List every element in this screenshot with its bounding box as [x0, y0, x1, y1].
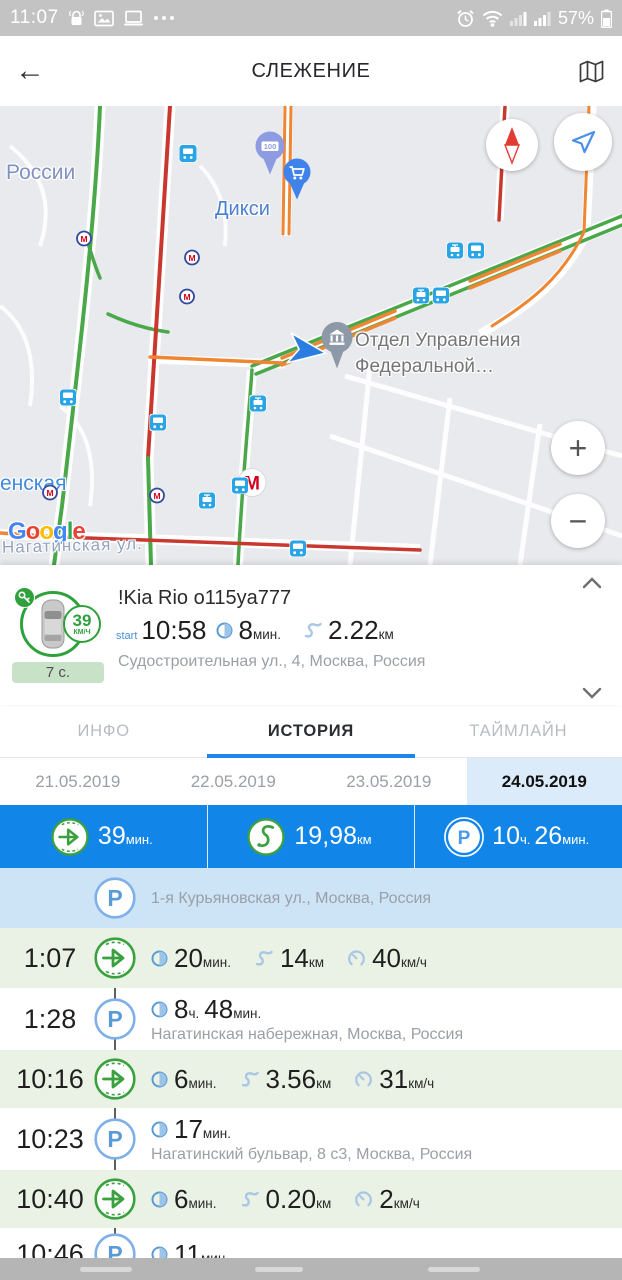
distance-stat: 14км: [254, 943, 329, 974]
distance-icon: [240, 1190, 260, 1209]
distance-stat: 0.20км: [240, 1184, 337, 1215]
stat-value: 3.56: [266, 1064, 317, 1095]
map-canvas[interactable]: России енская Дикси Отдел Управления Фед…: [0, 106, 622, 565]
duration-stat: 8ч.48мин.: [151, 994, 266, 1025]
stat-unit: км/ч: [401, 955, 427, 970]
map-label-street: Нагатинская ул.: [2, 534, 143, 558]
map-label-store: Дикси: [215, 198, 270, 221]
tram-icon: [413, 287, 430, 309]
stat-value: 31: [379, 1064, 408, 1095]
stat-value: 0.20: [266, 1184, 317, 1215]
stat-unit: мин.: [203, 1126, 231, 1141]
stat-unit: мин.: [188, 1196, 216, 1211]
metro-small-icon: М: [42, 485, 58, 506]
stat-value: 6: [174, 1184, 188, 1215]
battery-percent: 57%: [558, 8, 594, 29]
app-screen: 11:07: [0, 0, 622, 1280]
metro-small-icon: М: [149, 488, 165, 509]
metro-small-icon: М: [184, 250, 200, 271]
tram-icon: [250, 395, 267, 417]
timeline-row-trip[interactable]: 10:40 6мин. 0.20км 2км/ч: [0, 1170, 622, 1228]
duration-icon: [151, 1191, 168, 1208]
stat-value: 20: [174, 943, 203, 974]
alarm-icon: [456, 9, 475, 28]
bus-icon: [232, 477, 249, 499]
stat-value: 2: [379, 1184, 393, 1215]
vehicle-address: Судостроительная ул., 4, Москва, Россия: [118, 653, 425, 671]
parking-icon: P: [93, 1232, 137, 1258]
duration-stat: 11мин.: [151, 1239, 234, 1259]
history-timeline: P1-я Курьяновская ул., Москва, Россия1:0…: [0, 868, 622, 1258]
signal-icon-sim1: [510, 10, 527, 26]
day-summary-bar: 39мин. 19,98км P10ч.26мин.: [0, 805, 622, 868]
distance-stat: 3.56км: [240, 1064, 337, 1095]
summary-unit: мин.: [126, 832, 153, 847]
recents-key[interactable]: [80, 1267, 132, 1272]
row-time: 1:07: [0, 943, 100, 974]
route-icon: [246, 817, 286, 857]
bus-icon: [290, 540, 307, 562]
vehicle-name: !Kia Rio o115ya777: [118, 587, 291, 610]
collapse-chevron-icon[interactable]: [582, 577, 602, 589]
status-bar: 11:07: [0, 0, 622, 36]
date-tab[interactable]: 21.05.2019: [0, 758, 156, 805]
summary-unit: ч.: [520, 832, 530, 847]
row-time: 10:23: [0, 1124, 100, 1155]
summary-unit: км: [357, 832, 372, 847]
bus-icon: [150, 414, 167, 436]
compass-button[interactable]: [486, 119, 538, 171]
start-label: start: [116, 630, 137, 642]
compass-needle-icon: [497, 125, 527, 165]
parking-icon: P: [444, 817, 484, 857]
svg-text:P: P: [107, 1126, 122, 1152]
start-time: 10:58: [141, 615, 206, 646]
duration-icon: [151, 950, 168, 967]
tab-история[interactable]: ИСТОРИЯ: [207, 705, 414, 757]
distance-icon: [254, 949, 274, 968]
speed-stat: 40км/ч: [347, 943, 432, 974]
pc-connection-icon: [123, 10, 144, 27]
stat-unit: км: [309, 955, 324, 970]
trip-current-stats: start 10:58 8 мин. 2.22 км: [116, 615, 394, 646]
timeline-row-parking[interactable]: P1-я Курьяновская ул., Москва, Россия: [0, 868, 622, 928]
row-time: 10:46: [0, 1239, 100, 1259]
distance-value: 2.22: [328, 615, 379, 646]
cart-pin-icon: [280, 158, 314, 207]
row-address: Нагатинский бульвар, 8 с3, Москва, Росси…: [151, 1146, 472, 1164]
zoom-in-button[interactable]: +: [551, 421, 605, 475]
stat-value: 8: [174, 994, 188, 1025]
navigation-arrow-icon: [568, 127, 598, 157]
svg-text:100: 100: [264, 142, 277, 151]
battery-icon: [601, 9, 612, 28]
trip-icon: [93, 1057, 137, 1101]
svg-text:P: P: [107, 1241, 122, 1258]
signal-icon-sim2: [534, 10, 551, 26]
svg-text:М: М: [46, 488, 53, 498]
trip-icon: [50, 817, 90, 857]
metro-small-icon: М: [179, 289, 195, 310]
duration-stat: 20мин.: [151, 943, 236, 974]
stat-value: 6: [174, 1064, 188, 1095]
stat-value: 17: [174, 1114, 203, 1145]
duration-stat: 6мин.: [151, 1184, 222, 1215]
speed-badge: 39 км/ч: [63, 605, 101, 643]
duration-value: 8: [238, 615, 252, 646]
svg-text:М: М: [183, 292, 190, 302]
duration-icon: [151, 1071, 168, 1088]
vehicle-card: 39 км/ч 7 с. !Kia Rio o115ya777 start 10…: [0, 565, 622, 705]
stat-unit: мин.: [201, 1251, 229, 1259]
stat-unit: мин.: [233, 1006, 261, 1021]
timeline-row-trip[interactable]: 10:16 6мин. 3.56км 31км/ч: [0, 1050, 622, 1108]
svg-text:М: М: [153, 491, 160, 501]
summary-value: 19,98: [294, 822, 357, 851]
tab-bar: ИНФОИСТОРИЯТАЙМЛАЙН: [0, 705, 622, 758]
row-time: 10:40: [0, 1184, 100, 1215]
duration-stat: 6мин.: [151, 1064, 222, 1095]
map-label-poi: Отдел Управления Федеральной…: [355, 328, 521, 380]
row-address: Нагатинская набережная, Москва, Россия: [151, 1026, 463, 1044]
stat-unit: мин.: [203, 955, 231, 970]
bus-stop-icon: [179, 145, 197, 168]
more-notifications-icon: [153, 15, 175, 21]
tab-инфо[interactable]: ИНФО: [0, 705, 207, 757]
duration-unit: мин.: [253, 627, 281, 642]
duration-icon: [151, 1121, 168, 1138]
home-key[interactable]: [255, 1267, 303, 1272]
summary-route: 19,98км: [207, 805, 415, 868]
stat-unit: мин.: [188, 1076, 216, 1091]
svg-text:М: М: [188, 253, 195, 263]
bus-icon: [468, 242, 485, 264]
duration-stat: 17мин.: [151, 1114, 236, 1145]
svg-text:P: P: [107, 1006, 122, 1032]
speed-icon: [347, 949, 366, 968]
date-selector: 21.05.201922.05.201923.05.201924.05.2019: [0, 758, 622, 805]
android-nav-bar: [0, 1258, 622, 1280]
summary-trip: 39мин.: [0, 805, 207, 868]
stat-value: 11: [174, 1239, 201, 1259]
stat-unit: км: [316, 1196, 331, 1211]
stat-unit: км: [316, 1076, 331, 1091]
stat-value: 48: [204, 994, 233, 1025]
duration-icon: [151, 1246, 168, 1259]
svg-text:P: P: [458, 827, 471, 848]
parking-icon: P: [93, 876, 137, 920]
speed-icon: [354, 1190, 373, 1209]
tram-icon: [447, 242, 464, 264]
summary-value: 39: [98, 822, 126, 851]
row-time: 1:28: [0, 1004, 100, 1035]
speed-icon: [354, 1070, 373, 1089]
parking-icon: P: [93, 997, 137, 1041]
distance-icon: [240, 1070, 260, 1089]
row-address: 1-я Курьяновская ул., Москва, Россия: [151, 890, 431, 908]
trip-icon: [93, 936, 137, 980]
timeline-row-parking[interactable]: 10:23 P 17мин.Нагатинский бульвар, 8 с3,…: [0, 1108, 622, 1170]
duration-icon: [216, 622, 233, 639]
metro-small-icon: М: [76, 231, 92, 252]
map-label-region: России: [6, 161, 75, 185]
smart-lock-icon: [68, 9, 85, 27]
stat-value: 40: [372, 943, 401, 974]
duration-icon: [151, 1001, 168, 1018]
summary-parking: P10ч.26мин.: [414, 805, 622, 868]
page-title: СЛЕЖЕНИЕ: [0, 60, 622, 83]
summary-value: 26: [534, 822, 562, 851]
stat-unit: ч.: [188, 1006, 199, 1021]
stat-unit: км/ч: [408, 1076, 434, 1091]
timeline-row-trip[interactable]: 1:07 20мин. 14км 40км/ч: [0, 928, 622, 988]
stat-unit: км/ч: [394, 1196, 420, 1211]
distance-icon: [303, 621, 323, 640]
expand-chevron-icon[interactable]: [582, 687, 602, 699]
my-location-button[interactable]: [554, 113, 612, 171]
app-bar: СЛЕЖЕНИЕ ←: [0, 36, 622, 106]
ignition-key-icon: [14, 587, 35, 613]
screenshot-icon: [94, 10, 114, 27]
svg-text:P: P: [107, 885, 122, 911]
speed-stat: 31км/ч: [354, 1064, 439, 1095]
distance-unit: км: [379, 627, 394, 642]
zoom-out-button[interactable]: −: [551, 494, 605, 548]
summary-unit: мин.: [562, 832, 589, 847]
stat-value: 14: [280, 943, 309, 974]
status-badge: 7 с.: [12, 662, 104, 683]
svg-text:М: М: [80, 234, 87, 244]
timeline-row-parking[interactable]: 10:46 P 11мин.: [0, 1228, 622, 1258]
timeline-row-parking[interactable]: 1:28 P 8ч.48мин.Нагатинская набережная, …: [0, 988, 622, 1050]
clock-time: 11:07: [10, 7, 59, 29]
speed-stat: 2км/ч: [354, 1184, 424, 1215]
trip-icon: [93, 1177, 137, 1221]
back-key[interactable]: [428, 1267, 480, 1272]
poi-pin-icon: [317, 321, 357, 376]
date-tab[interactable]: 23.05.2019: [311, 758, 467, 805]
tram-icon: [199, 492, 216, 514]
row-time: 10:16: [0, 1064, 100, 1095]
date-tab[interactable]: 24.05.2019: [467, 758, 622, 805]
bus-icon: [433, 287, 450, 309]
parking-icon: P: [93, 1117, 137, 1161]
wifi-icon: [482, 10, 503, 27]
tab-таймлайн[interactable]: ТАЙМЛАЙН: [415, 705, 622, 757]
summary-value: 10: [492, 822, 520, 851]
date-tab[interactable]: 22.05.2019: [156, 758, 312, 805]
bus-icon: [60, 389, 77, 411]
